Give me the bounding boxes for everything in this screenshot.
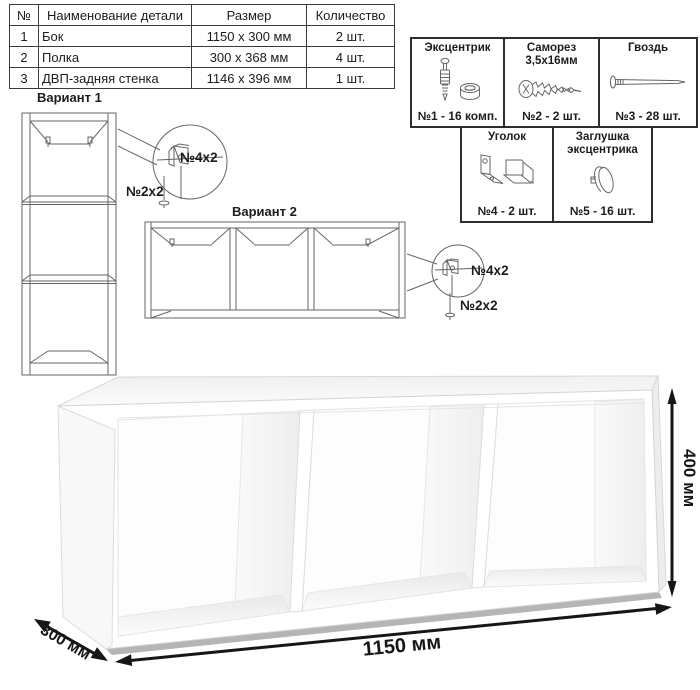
parts-table-header-row: № Наименование детали Размер Количество bbox=[10, 5, 395, 26]
variant2-drawing bbox=[140, 198, 510, 330]
cell-size: 1146 х 396 мм bbox=[192, 68, 307, 89]
hardware-item-count: №3 - 28 шт. bbox=[615, 109, 681, 126]
cell-quantity: 1 шт. bbox=[307, 68, 395, 89]
bracket-icon bbox=[443, 259, 459, 276]
table-row: 3 ДВП-задняя стенка 1146 х 396 мм 1 шт. bbox=[10, 68, 395, 89]
callout-leader-line bbox=[118, 129, 160, 150]
cam-lock-icon bbox=[427, 55, 489, 109]
hardware-item-count: №5 - 16 шт. bbox=[570, 204, 636, 221]
hardware-item-title: Гвоздь bbox=[628, 39, 668, 55]
col-header-quantity: Количество bbox=[307, 5, 395, 26]
col-header-name: Наименование детали bbox=[39, 5, 192, 26]
shelf-compartment bbox=[118, 411, 300, 636]
cell-size: 300 х 368 мм bbox=[192, 47, 307, 68]
hardware-item-count: №2 - 2 шт. bbox=[522, 109, 581, 126]
height-dimension-label: 400 мм bbox=[679, 449, 699, 507]
cell-quantity: 4 шт. bbox=[307, 47, 395, 68]
table-row: 2 Полка 300 х 368 мм 4 шт. bbox=[10, 47, 395, 68]
variant2-bracket-label: №4х2 bbox=[471, 263, 509, 278]
col-header-size: Размер bbox=[192, 5, 307, 26]
assembly-instruction-sheet: № Наименование детали Размер Количество … bbox=[0, 0, 700, 690]
cell-size: 1150 х 300 мм bbox=[192, 26, 307, 47]
shelf-compartment bbox=[302, 404, 484, 611]
variant2-screw-label: №2х2 bbox=[460, 298, 498, 313]
nail-icon bbox=[606, 55, 690, 109]
variant1-title: Вариант 1 bbox=[37, 90, 102, 105]
cell-number: 3 bbox=[10, 68, 39, 89]
wall-hook-icon bbox=[366, 239, 370, 247]
shelf-3d-render bbox=[0, 360, 700, 690]
shelf-left-face bbox=[58, 406, 115, 649]
cell-quantity: 2 шт. bbox=[307, 26, 395, 47]
parts-table: № Наименование детали Размер Количество … bbox=[9, 4, 395, 89]
screw-vertical-icon bbox=[446, 275, 455, 320]
callout-leader-line bbox=[118, 146, 157, 165]
height-dimension-arrow bbox=[668, 388, 677, 597]
callout-leader-line bbox=[407, 279, 438, 291]
screw-icon bbox=[515, 68, 589, 109]
variant1-screw-label: №2х2 bbox=[126, 184, 164, 199]
variant1-bracket-label: №4х2 bbox=[180, 150, 218, 165]
cell-name: Полка bbox=[39, 47, 192, 68]
hardware-item-nail: Гвоздь №3 - 28 шт. bbox=[598, 37, 698, 128]
shelf-compartment bbox=[484, 399, 646, 587]
hardware-item-title: Эксцентрик bbox=[424, 39, 490, 55]
cap-icon bbox=[583, 157, 623, 204]
callout-leader-line bbox=[407, 254, 437, 264]
hardware-item-title: Уголок bbox=[488, 128, 526, 144]
hardware-item-screw: Саморез 3,5х16мм №2 - 2 шт. bbox=[503, 37, 600, 128]
hardware-item-count: №1 - 16 комп. bbox=[418, 109, 498, 126]
table-row: 1 Бок 1150 х 300 мм 2 шт. bbox=[10, 26, 395, 47]
cell-number: 1 bbox=[10, 26, 39, 47]
cell-name: ДВП-задняя стенка bbox=[39, 68, 192, 89]
hardware-item-cam-lock: Эксцентрик №1 - 16 комп. bbox=[410, 37, 505, 128]
hardware-item-title: Заглушка эксцентрика bbox=[557, 128, 649, 157]
wall-hook-icon bbox=[170, 239, 174, 247]
hardware-item-title: Саморез 3,5х16мм bbox=[511, 39, 593, 68]
cell-name: Бок bbox=[39, 26, 192, 47]
corner-bracket-icon bbox=[474, 144, 540, 204]
cell-number: 2 bbox=[10, 47, 39, 68]
col-header-number: № bbox=[10, 5, 39, 26]
hardware-item-cap: Заглушка эксцентрика №5 - 16 шт. bbox=[552, 126, 653, 223]
